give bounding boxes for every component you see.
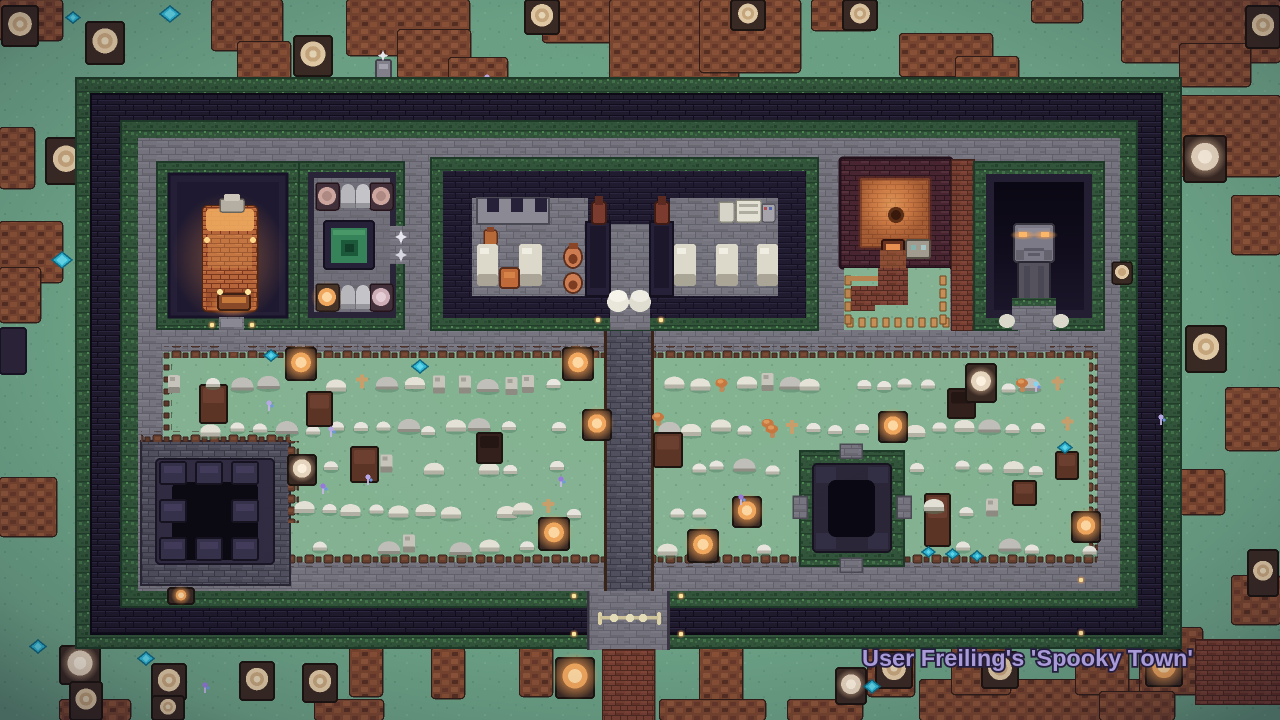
svg-text:User Freiling's 'Spooky Town': User Freiling's 'Spooky Town'	[862, 645, 1193, 671]
